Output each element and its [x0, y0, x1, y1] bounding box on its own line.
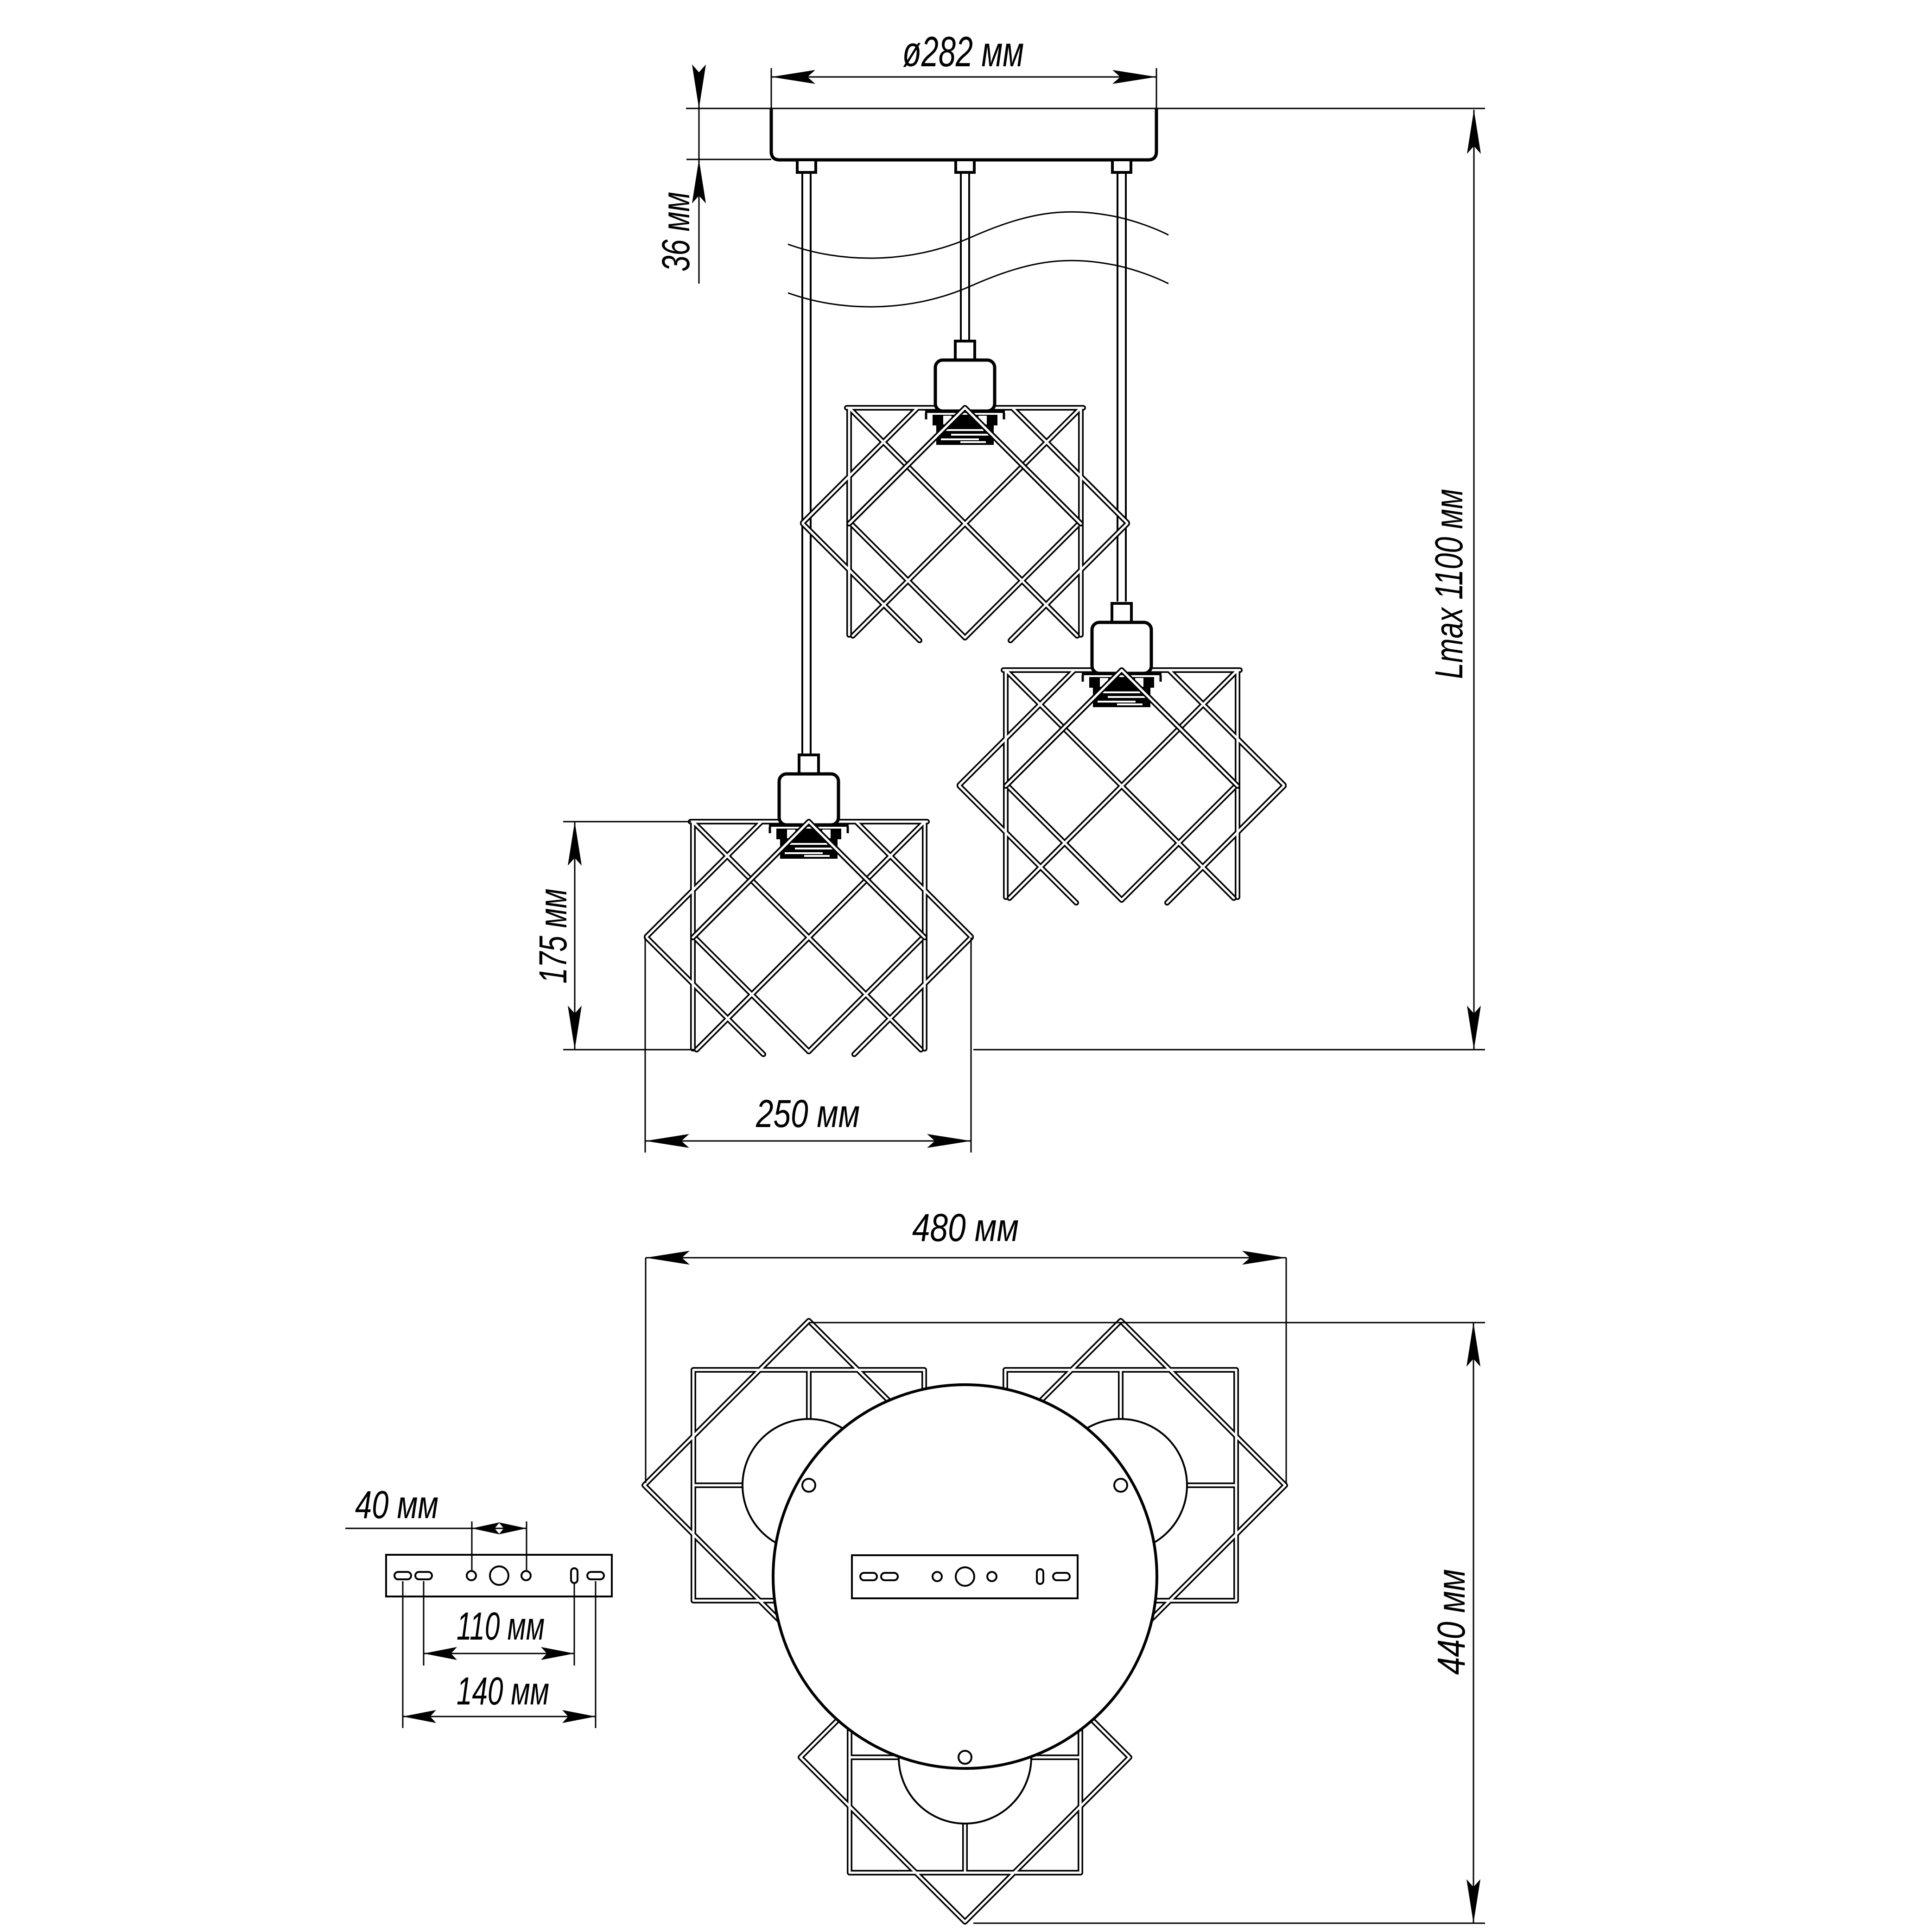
svg-text:ø282 мм: ø282 мм: [902, 28, 1024, 76]
svg-text:175 мм: 175 мм: [531, 889, 575, 984]
svg-text:250 мм: 250 мм: [755, 1092, 860, 1135]
svg-text:480 мм: 480 мм: [912, 1206, 1019, 1249]
svg-text:140 мм: 140 мм: [457, 1669, 549, 1713]
svg-text:Lmax 1100 мм: Lmax 1100 мм: [1427, 489, 1471, 679]
svg-text:110 мм: 110 мм: [457, 1604, 545, 1648]
svg-text:40 мм: 40 мм: [355, 1483, 438, 1527]
svg-text:36 мм: 36 мм: [654, 192, 698, 272]
svg-text:440 мм: 440 мм: [1429, 1569, 1473, 1675]
